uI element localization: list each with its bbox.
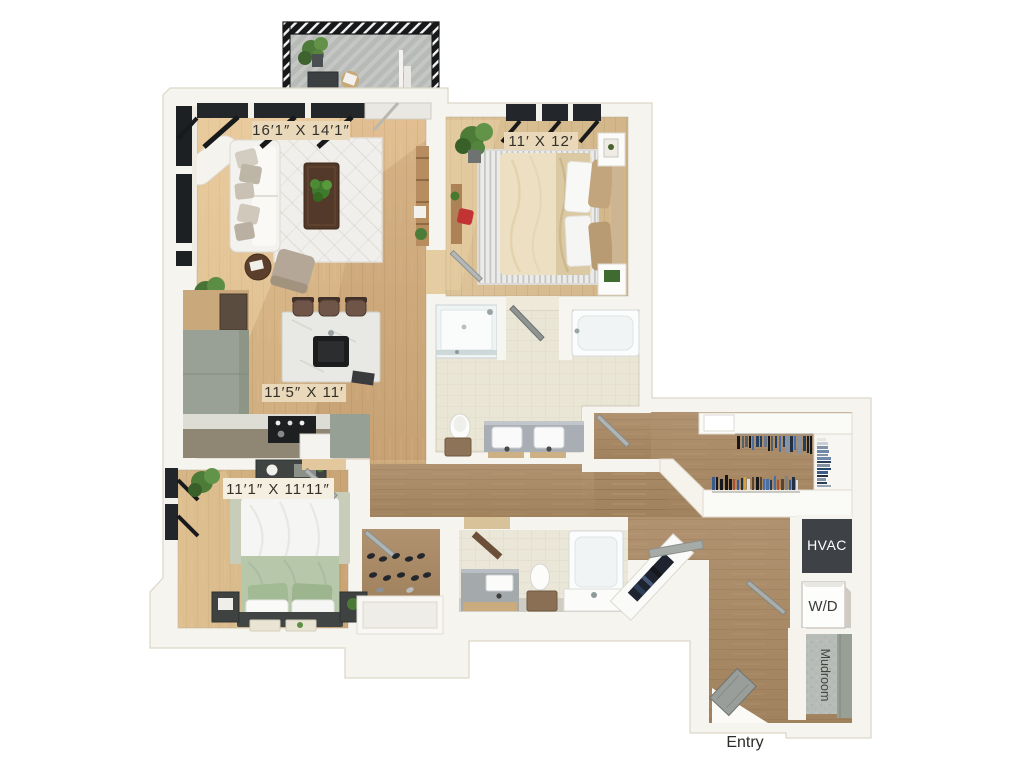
svg-text:11′1″ X 11′11″: 11′1″ X 11′11″ (226, 481, 330, 498)
svg-text:11′ X 12′: 11′ X 12′ (508, 133, 573, 150)
svg-text:16′1″ X 14′1″: 16′1″ X 14′1″ (252, 122, 350, 139)
svg-text:Mudroom: Mudroom (818, 649, 832, 702)
svg-text:W/D: W/D (808, 598, 837, 615)
svg-text:11′5″ X 11′: 11′5″ X 11′ (264, 384, 344, 401)
svg-text:Entry: Entry (726, 734, 763, 751)
svg-text:HVAC: HVAC (807, 537, 847, 553)
